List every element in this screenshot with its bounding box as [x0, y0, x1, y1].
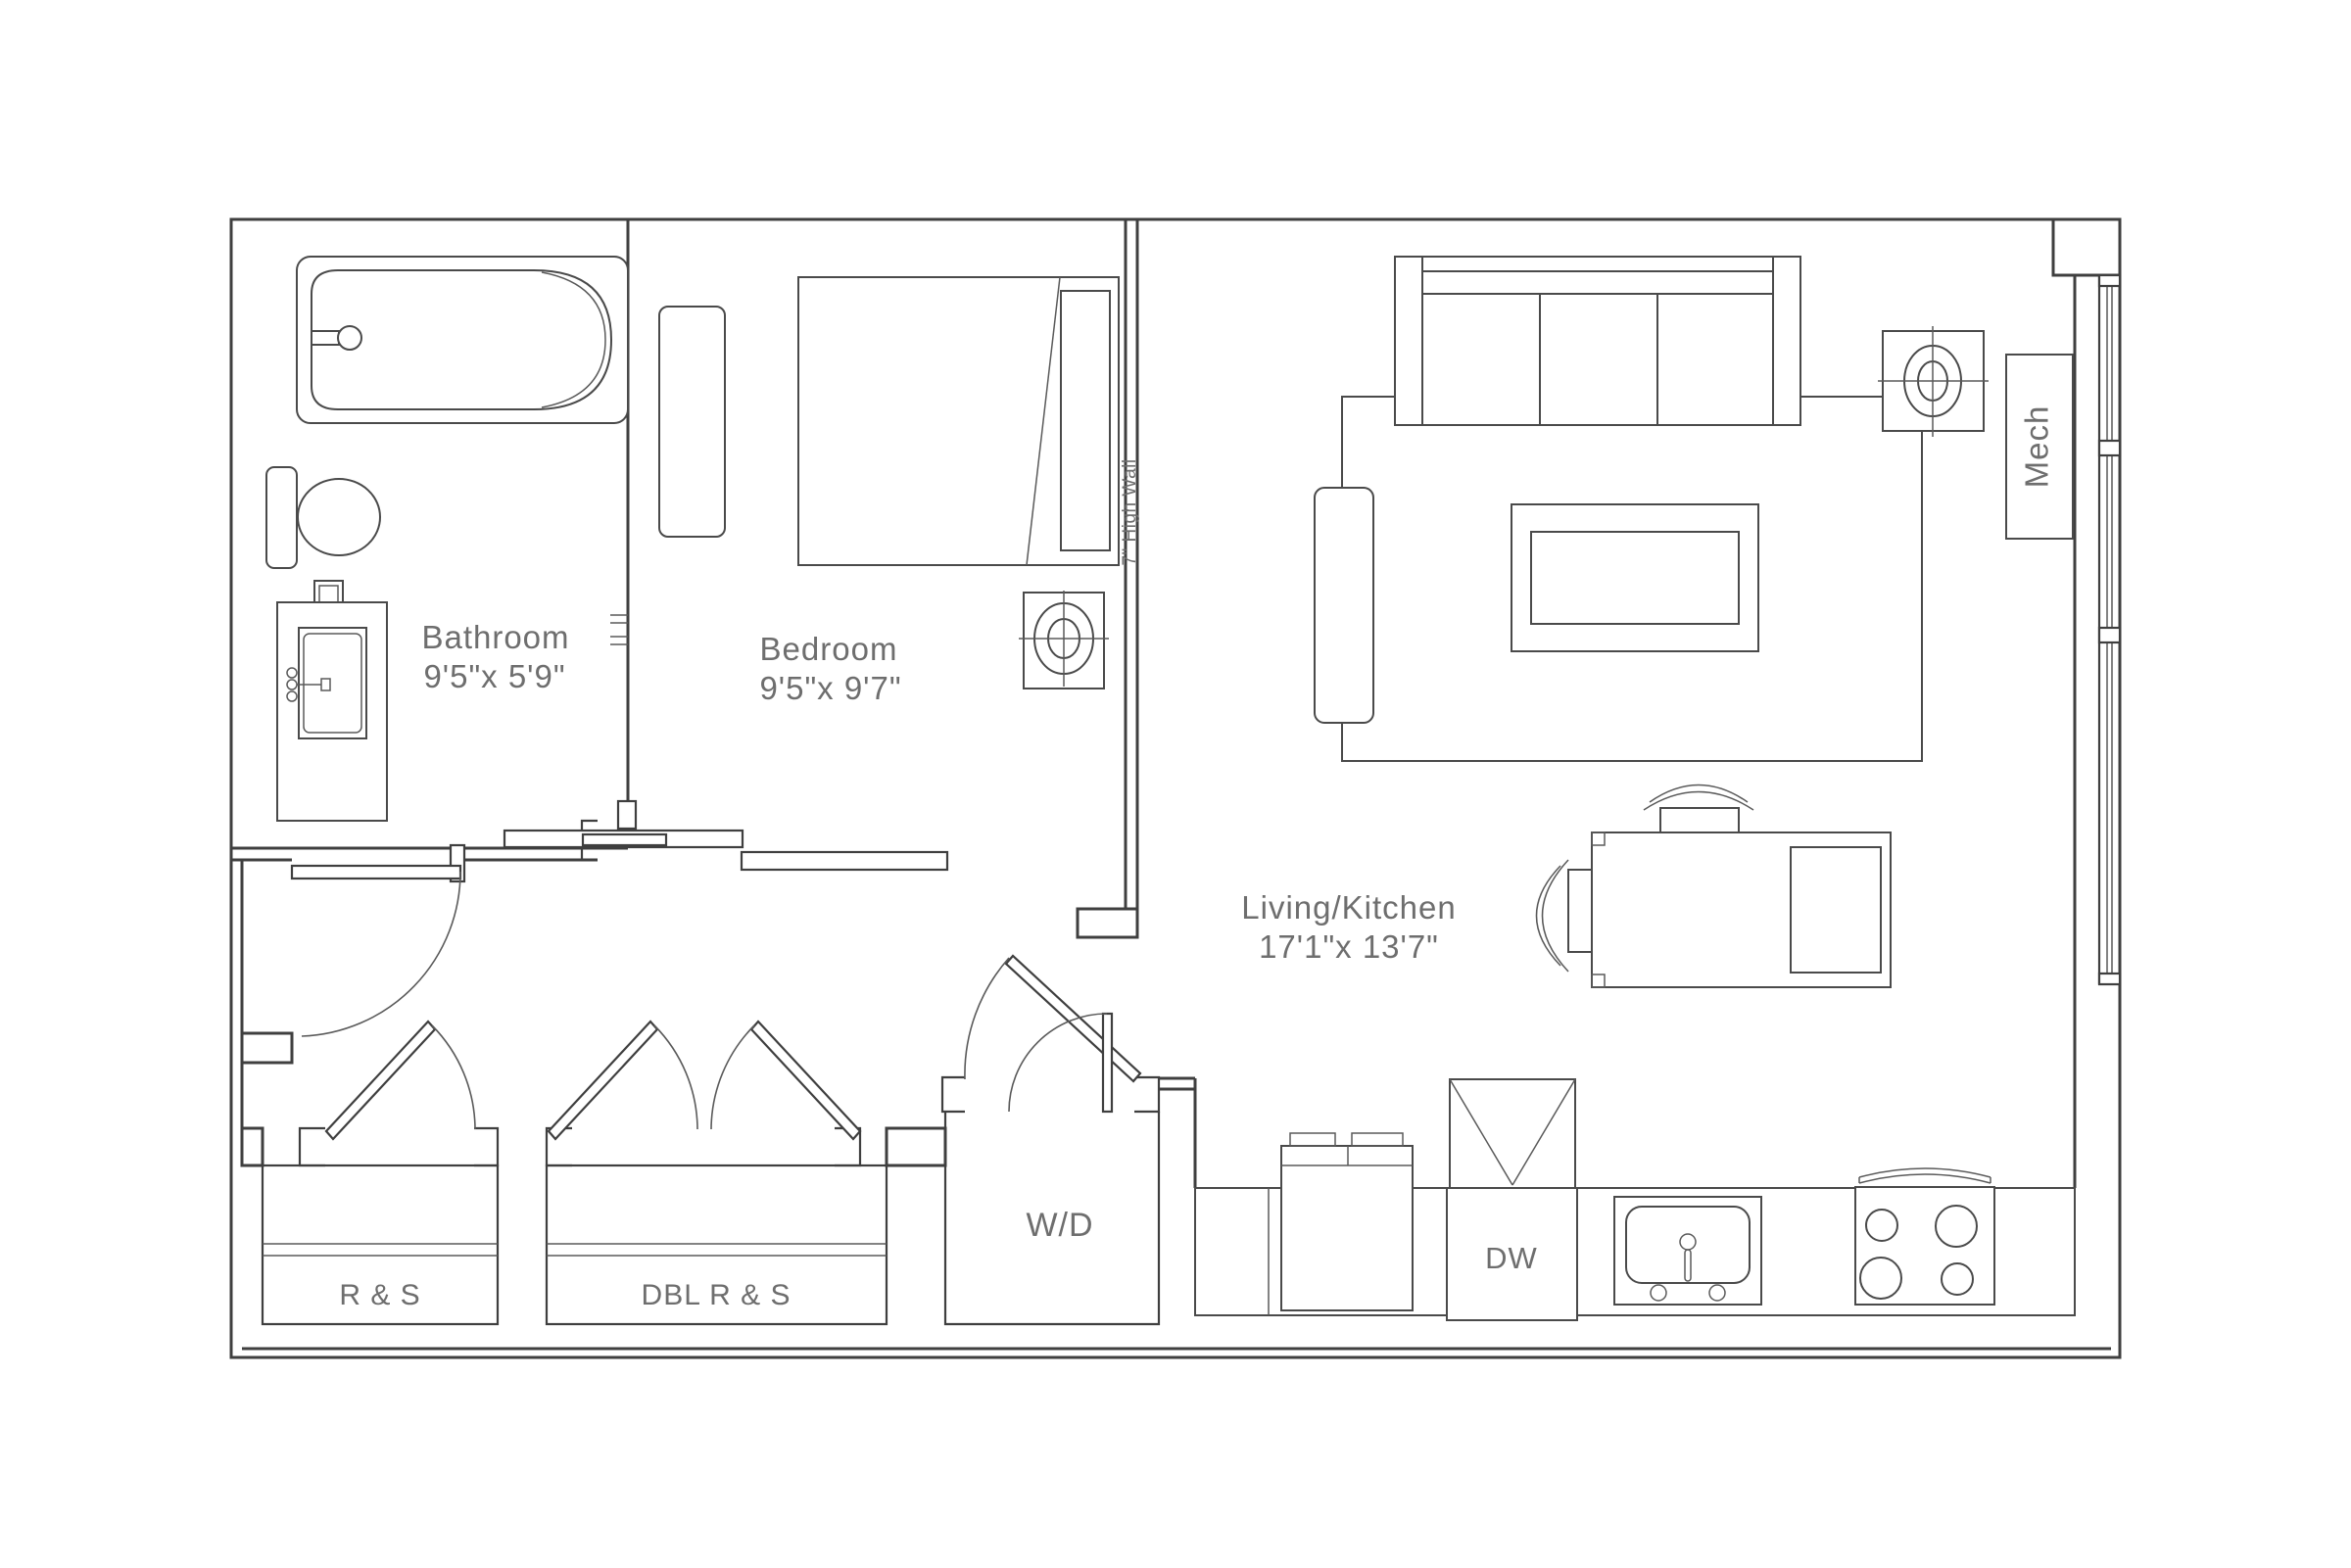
- living-kitchen-dims: 17'1"x 13'7": [1259, 928, 1439, 965]
- toilet-tank: [266, 467, 297, 568]
- bathtub: [297, 257, 628, 423]
- dining-chair-seat: [1568, 870, 1592, 952]
- fridge-handle: [1290, 1133, 1335, 1146]
- door-jamb: [300, 1128, 325, 1165]
- dining-chair-seat: [1660, 808, 1739, 832]
- tub-faucet: [312, 331, 339, 345]
- bedroom-dims: 9'5"x 9'7": [759, 670, 901, 706]
- door-jamb: [474, 1128, 498, 1165]
- dining-chair-back: [1537, 860, 1569, 972]
- window-mullion: [2099, 441, 2120, 455]
- doors: [292, 866, 1140, 1139]
- dishwasher-label: DW: [1485, 1241, 1538, 1275]
- floor-plan: Bathroom 9'5"x 5'9" Bedroom 9'5"x 9'7" L…: [0, 0, 2351, 1568]
- door-jamb: [1134, 1077, 1159, 1112]
- wall-pier: [887, 1128, 945, 1165]
- ceiling-fan-icon: [1878, 326, 1989, 437]
- stove: [1855, 1168, 1994, 1305]
- bathroom-label: Bathroom: [421, 619, 569, 655]
- bathroom-dims: 9'5"x 5'9": [423, 658, 565, 694]
- closet-door-leaf: [751, 1022, 860, 1139]
- mech-label: Mech: [2019, 405, 2055, 489]
- living-furniture: [1315, 257, 1989, 987]
- bedroom-east-wall: [1126, 219, 1137, 916]
- kitchen: [1195, 1079, 2075, 1320]
- wd-door-leaf: [1103, 1014, 1112, 1112]
- corner-pier: [2053, 219, 2120, 275]
- dishwasher-door-open: [1450, 1079, 1575, 1188]
- wall-end-cap: [618, 801, 636, 829]
- bathroom-fixtures: [266, 257, 628, 821]
- window-wall: [2099, 275, 2120, 984]
- refrigerator: [1281, 1133, 1413, 1310]
- closet-door-swing-arc: [654, 1025, 697, 1129]
- fridge-handle: [1352, 1133, 1403, 1146]
- dresser: [659, 307, 725, 537]
- high-wall-annotation: 7" High Wall: [1120, 458, 1140, 565]
- ceiling-fan-icon: [1019, 591, 1109, 689]
- sofa: [1395, 257, 1800, 425]
- tub-faucet-knob: [338, 326, 361, 350]
- toilet-bowl: [298, 479, 380, 555]
- wd-door-leaf: [1006, 956, 1140, 1081]
- vanity-sink: [277, 602, 387, 821]
- closet-shelf: [547, 1244, 887, 1256]
- coffee-table: [1511, 504, 1758, 651]
- closet-door-leaf: [549, 1022, 657, 1139]
- wd-door-swing-arc: [965, 958, 1009, 1079]
- closet-dbl-rs-label: DBL R & S: [642, 1279, 792, 1311]
- washer-dryer-label: W/D: [1026, 1207, 1093, 1244]
- wall-pier: [242, 1128, 263, 1165]
- bedroom-label: Bedroom: [760, 631, 898, 667]
- kitchen-wall: [1159, 1078, 1195, 1188]
- wall-pier: [242, 1033, 292, 1063]
- dishwasher: [1447, 1079, 1577, 1320]
- wall-end-block: [1078, 909, 1137, 937]
- door-strike-detail: [610, 615, 628, 644]
- closet-rs-label: R & S: [339, 1279, 420, 1311]
- closet-shelf: [263, 1244, 498, 1256]
- dining-set: [1537, 785, 1892, 988]
- sliding-door-panel-overlap: [583, 834, 666, 845]
- bed: [798, 277, 1119, 565]
- oven-handle: [1859, 1168, 1991, 1183]
- closet-door-swing-arc: [432, 1025, 475, 1129]
- closet-door-leaf: [326, 1022, 435, 1139]
- window-mullion: [2099, 628, 2120, 642]
- dining-chair-back: [1644, 785, 1753, 811]
- toilet: [266, 467, 380, 568]
- bathroom-door-swing-arc: [302, 872, 460, 1036]
- closet-door-swing-arc: [711, 1025, 754, 1129]
- bedroom-furniture: [659, 277, 1119, 689]
- kitchen-sink: [1614, 1197, 1761, 1305]
- dining-table: [1592, 832, 1891, 987]
- sliding-door-panel: [742, 852, 947, 870]
- door-jamb: [942, 1077, 965, 1112]
- console-table: [1315, 488, 1373, 723]
- bathroom-door-leaf: [292, 866, 460, 879]
- living-kitchen-label: Living/Kitchen: [1241, 889, 1456, 926]
